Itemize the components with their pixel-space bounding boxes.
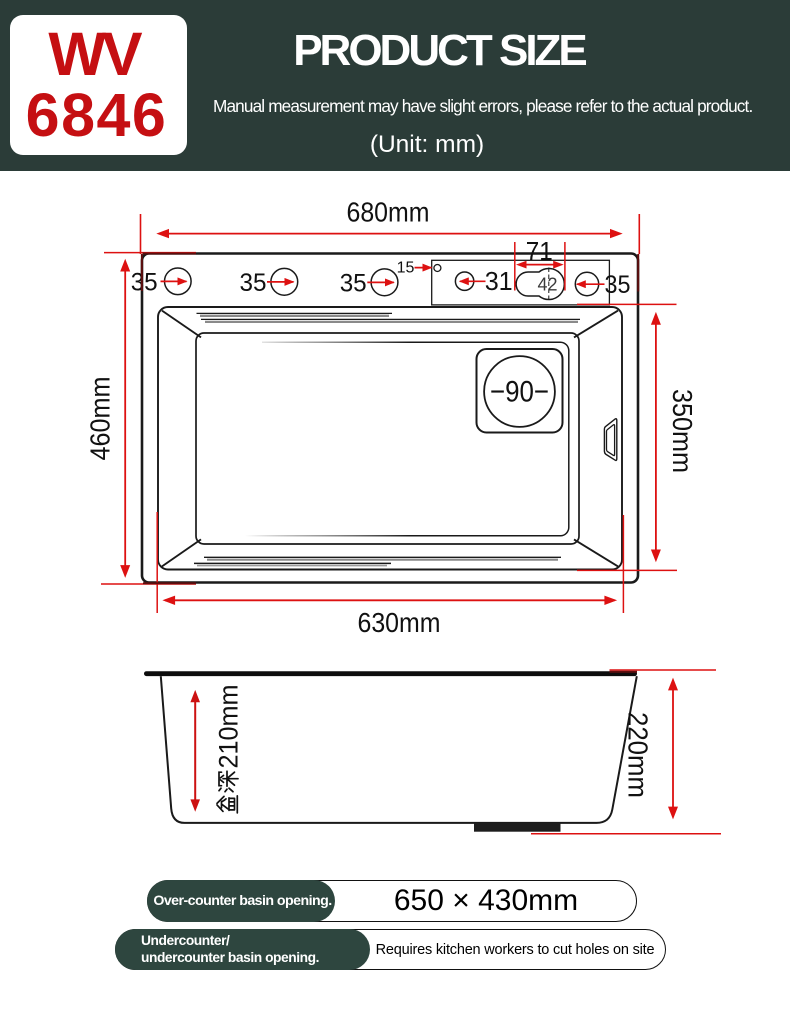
- svg-text:71: 71: [526, 236, 553, 266]
- svg-text:42: 42: [537, 275, 557, 295]
- svg-text:35: 35: [605, 271, 631, 299]
- svg-text:−90−: −90−: [490, 376, 549, 409]
- svg-text:220mm: 220mm: [623, 712, 654, 798]
- svg-text:350mm: 350mm: [667, 389, 698, 473]
- svg-text:630mm: 630mm: [358, 607, 441, 638]
- svg-text:15: 15: [397, 260, 415, 277]
- svg-text:680mm: 680mm: [347, 197, 430, 228]
- svg-text:35: 35: [340, 269, 367, 297]
- svg-text:210mm: 210mm: [214, 685, 244, 769]
- svg-text:35: 35: [131, 268, 158, 296]
- svg-text:35: 35: [240, 269, 267, 297]
- svg-text:31: 31: [485, 266, 513, 296]
- svg-text:460mm: 460mm: [85, 377, 116, 461]
